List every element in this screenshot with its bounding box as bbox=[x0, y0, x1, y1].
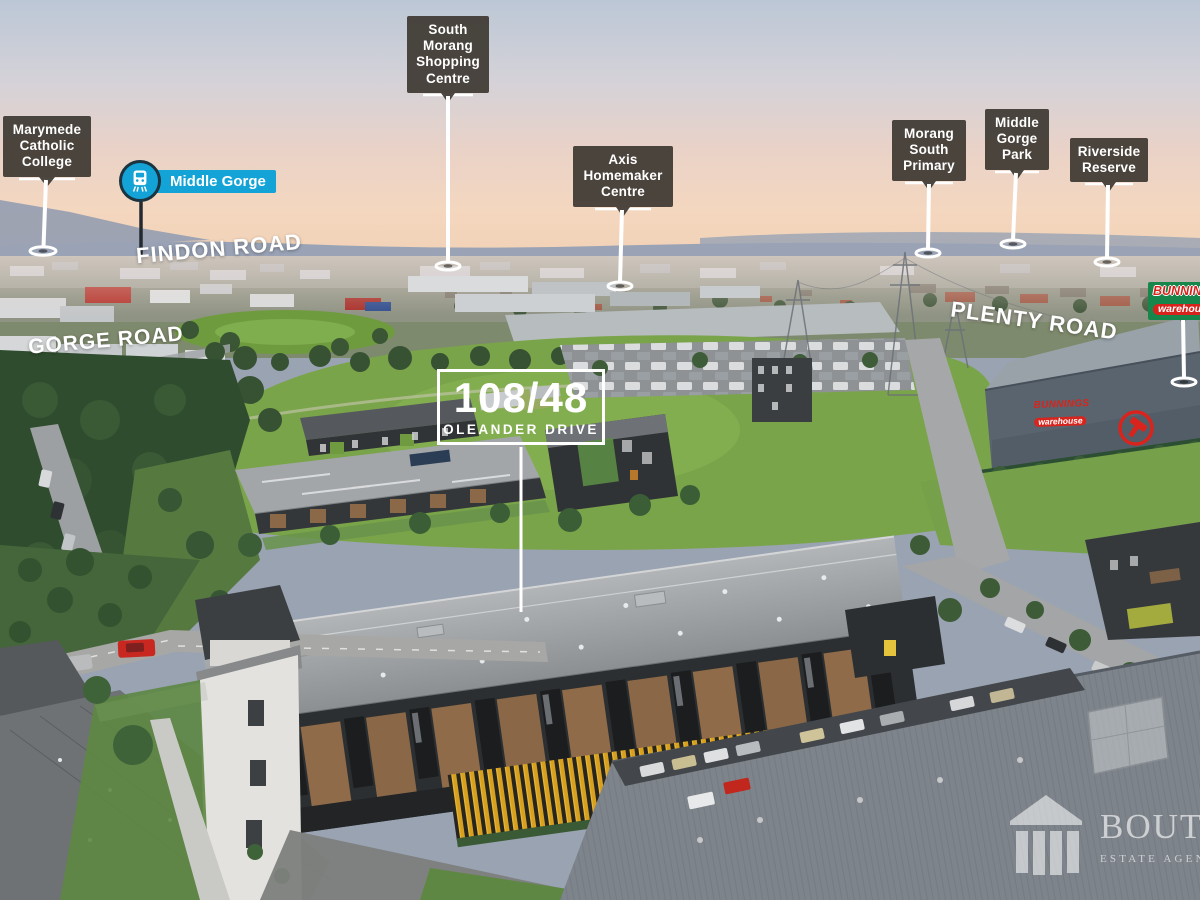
right-dark-buildings bbox=[1085, 522, 1200, 640]
property-callout: 108/48 OLEANDER DRIVE bbox=[437, 369, 605, 445]
agency-tagline: ESTATE AGENCY bbox=[1100, 853, 1200, 865]
pin-label-text: Morang South Primary bbox=[903, 126, 955, 173]
pin-label-south-morang-shopping-centre: South Morang Shopping Centre bbox=[407, 16, 489, 93]
pin-label-text: Axis Homemaker Centre bbox=[583, 152, 662, 199]
pin-label-riverside-reserve: Riverside Reserve bbox=[1070, 138, 1148, 182]
pin-label-middle-gorge-park: Middle Gorge Park bbox=[985, 109, 1049, 170]
pin-label-text: Marymede Catholic College bbox=[13, 122, 81, 169]
pin-label-text: Middle Gorge Park bbox=[995, 115, 1039, 162]
pin-label-text: Riverside Reserve bbox=[1078, 144, 1141, 175]
agency-watermark: BOUTIQUE ESTATE AGENCY bbox=[1010, 795, 1200, 875]
pin-label-text: South Morang Shopping Centre bbox=[416, 22, 480, 86]
bunnings-warehouse-text: warehouse bbox=[1153, 304, 1200, 316]
train-station-name: Middle Gorge bbox=[170, 173, 266, 190]
pin-label-morang-south-primary: Morang South Primary bbox=[892, 120, 966, 181]
property-street-name: OLEANDER DRIVE bbox=[440, 422, 602, 437]
pin-label-marymede-catholic-college: Marymede Catholic College bbox=[3, 116, 91, 177]
bunnings-wall-warehouse-text: warehouse bbox=[1034, 416, 1087, 428]
property-unit-number: 108/48 bbox=[440, 377, 602, 419]
bunnings-building-wall-signage: BUNNINGS warehouse bbox=[1033, 398, 1090, 430]
pin-label-axis-homemaker-centre: Axis Homemaker Centre bbox=[573, 146, 673, 207]
boutique-logo-icon bbox=[1010, 795, 1082, 875]
train-icon bbox=[119, 160, 161, 202]
pin-label-bunnings-warehouse: BUNNINGS warehouse bbox=[1148, 282, 1200, 320]
aerial-property-photo: Marymede Catholic College South Morang S… bbox=[0, 0, 1200, 900]
train-station-label: Middle Gorge bbox=[154, 170, 276, 193]
agency-name: BOUTIQUE bbox=[1100, 807, 1200, 847]
parking-lot bbox=[560, 338, 915, 398]
bunnings-brand-text: BUNNINGS bbox=[1153, 285, 1200, 299]
